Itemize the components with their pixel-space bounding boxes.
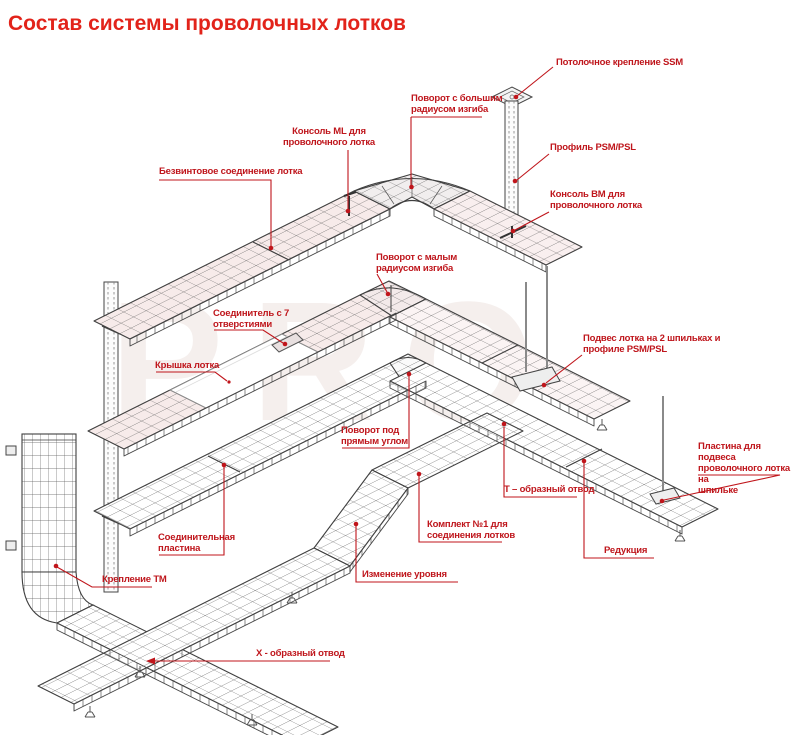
label-right-angle-turn: Поворот под прямым углом [341,425,408,447]
label-tray-cover: Крышка лотка [155,360,219,371]
label-screwless-joint: Безвинтовое соединение лотка [159,166,302,177]
label-console-bm: Консоль BM для проволочного лотка [550,189,642,211]
label-mount-tm: Крепление ТМ [102,574,167,585]
label-joint-plate: Соединительная пластина [158,532,235,554]
diagram-canvas: PRO [0,0,796,735]
label-hanger-plate: Пластина для подвеса проволочного лотка … [698,441,796,496]
label-profile-psm-psl: Профиль PSM/PSL [550,142,636,153]
tm-bracket-bottom [6,541,16,550]
label-bend-small-radius: Поворот с малым радиусом изгиба [376,252,457,274]
label-connector-7-holes: Соединитель с 7 отверстиями [213,308,289,330]
label-hanger-2-studs: Подвес лотка на 2 шпильках и профиле PSM… [583,333,720,355]
label-reduction: Редукция [604,545,647,556]
label-console-ml: Консоль ML для проволочного лотка [277,126,381,148]
label-t-branch: Т – образный отвод [504,484,594,495]
mesh-wall-panel [6,434,93,623]
tm-bracket-top [6,446,16,455]
page-title: Состав системы проволочных лотков [8,12,406,36]
label-level-change: Изменение уровня [362,569,447,580]
label-kit-no1: Комплект №1 для соединения лотков [427,519,515,541]
label-x-branch: X - образный отвод [256,648,345,659]
label-bend-large-radius: Поворот с большим радиусом изгиба [411,93,502,115]
wire-tray-system-diagram: PRO [0,0,796,735]
label-ceiling-mount-ssm: Потолочное крепление SSM [556,57,683,68]
